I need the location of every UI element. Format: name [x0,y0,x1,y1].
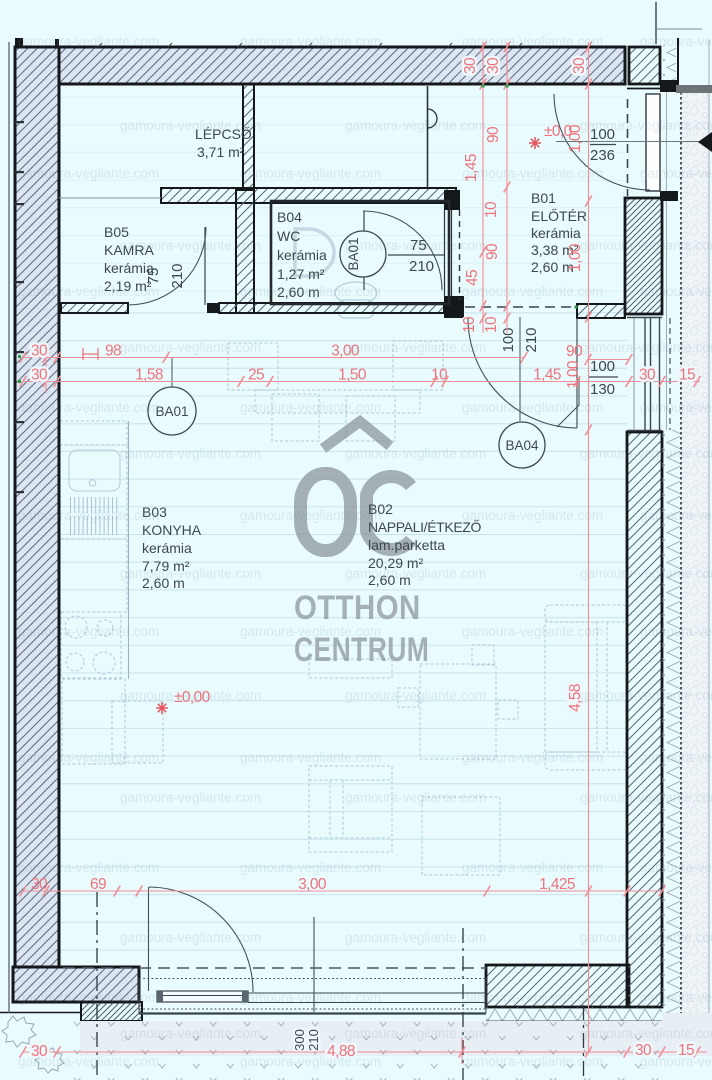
svg-text:gamoura-vegliante.com: gamoura-vegliante.com [345,238,486,253]
svg-text:gamoura-vegliante.com: gamoura-vegliante.com [580,446,712,461]
svg-text:OTTHON: OTTHON [294,588,421,627]
svg-text:gamoura-vegliante.com: gamoura-vegliante.com [18,508,159,523]
svg-text:gamoura-vegliante.com: gamoura-vegliante.com [462,284,603,299]
svg-text:gamoura-vegliante.com: gamoura-vegliante.com [462,166,603,181]
svg-text:3,00: 3,00 [298,876,327,893]
svg-text:1,00: 1,00 [565,360,582,389]
svg-text:15: 15 [679,367,695,384]
svg-text:±0,0: ±0,0 [544,123,573,140]
svg-text:30: 30 [571,57,588,74]
svg-text:236: 236 [590,147,615,164]
svg-text:KONYHA: KONYHA [142,522,202,538]
svg-text:10: 10 [483,316,500,333]
svg-text:gamoura-vegliante.com: gamoura-vegliante.com [462,990,603,1005]
svg-text:B01: B01 [531,190,556,206]
svg-text:gamoura-vegliante.com: gamoura-vegliante.com [345,118,486,133]
svg-text:gamoura-vegliante.com: gamoura-vegliante.com [462,508,603,523]
svg-text:B04: B04 [277,209,302,225]
svg-text:kerámia: kerámia [277,247,327,263]
svg-text:gamoura-vegliante.com: gamoura-vegliante.com [240,750,381,765]
svg-text:gamoura-vegliante.com: gamoura-vegliante.com [120,238,261,253]
svg-text:gamoura-vegliante.com: gamoura-vegliante.com [120,566,261,581]
svg-text:75: 75 [145,268,162,285]
svg-text:gamoura-vegliante.com: gamoura-vegliante.com [240,166,381,181]
svg-text:gamoura-vegliante.com: gamoura-vegliante.com [18,34,159,49]
svg-text:gamoura-vegliante.com: gamoura-vegliante.com [240,624,381,639]
svg-text:100: 100 [500,327,517,352]
svg-text:gamoura-vegliante.com: gamoura-vegliante.com [240,860,381,875]
svg-text:210: 210 [169,263,186,288]
svg-text:30: 30 [31,343,48,360]
svg-text:gamoura-vegliante.com: gamoura-vegliante.com [640,166,712,181]
svg-text:gamoura-vegliante.com: gamoura-vegliante.com [240,34,381,49]
svg-text:gamoura-vegliante.com: gamoura-vegliante.com [18,750,159,765]
svg-text:10: 10 [483,201,500,218]
svg-text:90: 90 [485,126,502,143]
svg-text:3,71 m²: 3,71 m² [197,144,245,160]
svg-text:gamoura-vegliante.com: gamoura-vegliante.com [580,340,712,355]
svg-text:WC: WC [277,228,300,244]
svg-text:30: 30 [485,57,502,74]
svg-text:gamoura-vegliante.com: gamoura-vegliante.com [18,990,159,1005]
svg-text:gamoura-vegliante.com: gamoura-vegliante.com [640,860,712,875]
svg-text:gamoura-vegliante.com: gamoura-vegliante.com [18,860,159,875]
svg-text:gamoura-vegliante.com: gamoura-vegliante.com [345,1026,486,1041]
svg-text:300: 300 [292,1029,307,1051]
svg-text:gamoura-vegliante.com: gamoura-vegliante.com [345,790,486,805]
svg-text:30: 30 [462,57,479,74]
svg-text:gamoura-vegliante.com: gamoura-vegliante.com [345,688,486,703]
svg-text:kerámia: kerámia [142,540,192,556]
svg-text:gamoura-vegliante.com: gamoura-vegliante.com [120,340,261,355]
svg-text:25: 25 [248,367,264,384]
svg-text:69: 69 [90,876,106,893]
svg-text:gamoura-vegliante.com: gamoura-vegliante.com [580,790,712,805]
svg-text:gamoura-vegliante.com: gamoura-vegliante.com [640,284,712,299]
svg-text:gamoura-vegliante.com: gamoura-vegliante.com [640,400,712,415]
svg-text:30: 30 [31,876,48,893]
svg-text:gamoura-vegliante.com: gamoura-vegliante.com [18,624,159,639]
svg-text:gamoura-vegliante.com: gamoura-vegliante.com [240,508,381,523]
svg-text:lam.parketta: lam.parketta [368,537,445,553]
svg-text:gamoura-vegliante.com: gamoura-vegliante.com [120,688,261,703]
svg-text:gamoura-vegliante.com: gamoura-vegliante.com [640,1054,712,1069]
svg-text:gamoura-vegliante.com: gamoura-vegliante.com [120,446,261,461]
svg-text:gamoura-vegliante.com: gamoura-vegliante.com [345,930,486,945]
svg-text:gamoura-vegliante.com: gamoura-vegliante.com [580,118,712,133]
svg-text:gamoura-vegliante.com: gamoura-vegliante.com [580,688,712,703]
svg-text:BA04: BA04 [505,438,539,453]
svg-text:ELŐTÉR: ELŐTÉR [531,208,587,224]
svg-text:gamoura-vegliante.com: gamoura-vegliante.com [580,930,712,945]
svg-text:gamoura-vegliante.com: gamoura-vegliante.com [240,990,381,1005]
svg-text:gamoura-vegliante.com: gamoura-vegliante.com [240,400,381,415]
svg-text:gamoura-vegliante.com: gamoura-vegliante.com [640,508,712,523]
svg-text:30: 30 [31,367,48,384]
svg-text:1,425: 1,425 [539,876,575,893]
svg-text:gamoura-vegliante.com: gamoura-vegliante.com [240,1054,381,1069]
svg-text:30: 30 [639,367,656,384]
svg-text:gamoura-vegliante.com: gamoura-vegliante.com [462,624,603,639]
svg-text:gamoura-vegliante.com: gamoura-vegliante.com [462,750,603,765]
svg-text:gamoura-vegliante.com: gamoura-vegliante.com [580,566,712,581]
svg-text:kerámia: kerámia [531,225,581,241]
svg-text:98: 98 [105,343,121,360]
svg-text:gamoura-vegliante.com: gamoura-vegliante.com [18,400,159,415]
svg-text:1,45: 1,45 [533,367,561,384]
svg-text:gamoura-vegliante.com: gamoura-vegliante.com [580,238,712,253]
svg-text:10: 10 [431,367,448,384]
svg-text:gamoura-vegliante.com: gamoura-vegliante.com [640,34,712,49]
svg-text:1,27 m²: 1,27 m² [277,266,325,282]
svg-text:gamoura-vegliante.com: gamoura-vegliante.com [120,790,261,805]
svg-text:100: 100 [590,358,615,375]
svg-text:gamoura-vegliante.com: gamoura-vegliante.com [580,1026,712,1041]
svg-text:gamoura-vegliante.com: gamoura-vegliante.com [18,284,159,299]
svg-text:gamoura-vegliante.com: gamoura-vegliante.com [462,860,603,875]
svg-text:gamoura-vegliante.com: gamoura-vegliante.com [18,166,159,181]
svg-text:gamoura-vegliante.com: gamoura-vegliante.com [120,930,261,945]
svg-text:gamoura-vegliante.com: gamoura-vegliante.com [462,34,603,49]
svg-text:gamoura-vegliante.com: gamoura-vegliante.com [345,446,486,461]
svg-text:gamoura-vegliante.com: gamoura-vegliante.com [640,624,712,639]
svg-text:gamoura-vegliante.com: gamoura-vegliante.com [462,400,603,415]
svg-text:gamoura-vegliante.com: gamoura-vegliante.com [120,118,261,133]
svg-text:gamoura-vegliante.com: gamoura-vegliante.com [120,1026,261,1041]
svg-text:gamoura-vegliante.com: gamoura-vegliante.com [640,990,712,1005]
svg-text:gamoura-vegliante.com: gamoura-vegliante.com [640,750,712,765]
svg-text:gamoura-vegliante.com: gamoura-vegliante.com [462,1054,603,1069]
svg-text:gamoura-vegliante.com: gamoura-vegliante.com [345,566,486,581]
svg-text:gamoura-vegliante.com: gamoura-vegliante.com [18,1054,159,1069]
svg-text:1,50: 1,50 [338,367,367,384]
svg-text:130: 130 [590,381,615,398]
svg-text:gamoura-vegliante.com: gamoura-vegliante.com [345,340,486,355]
svg-text:210: 210 [306,1029,321,1051]
svg-text:BA01: BA01 [155,404,188,419]
svg-text:1,58: 1,58 [135,367,163,384]
svg-text:gamoura-vegliante.com: gamoura-vegliante.com [240,284,381,299]
svg-text:210: 210 [523,327,540,352]
svg-text:210: 210 [409,258,434,275]
svg-text:10: 10 [461,316,478,333]
svg-text:90: 90 [484,243,501,260]
